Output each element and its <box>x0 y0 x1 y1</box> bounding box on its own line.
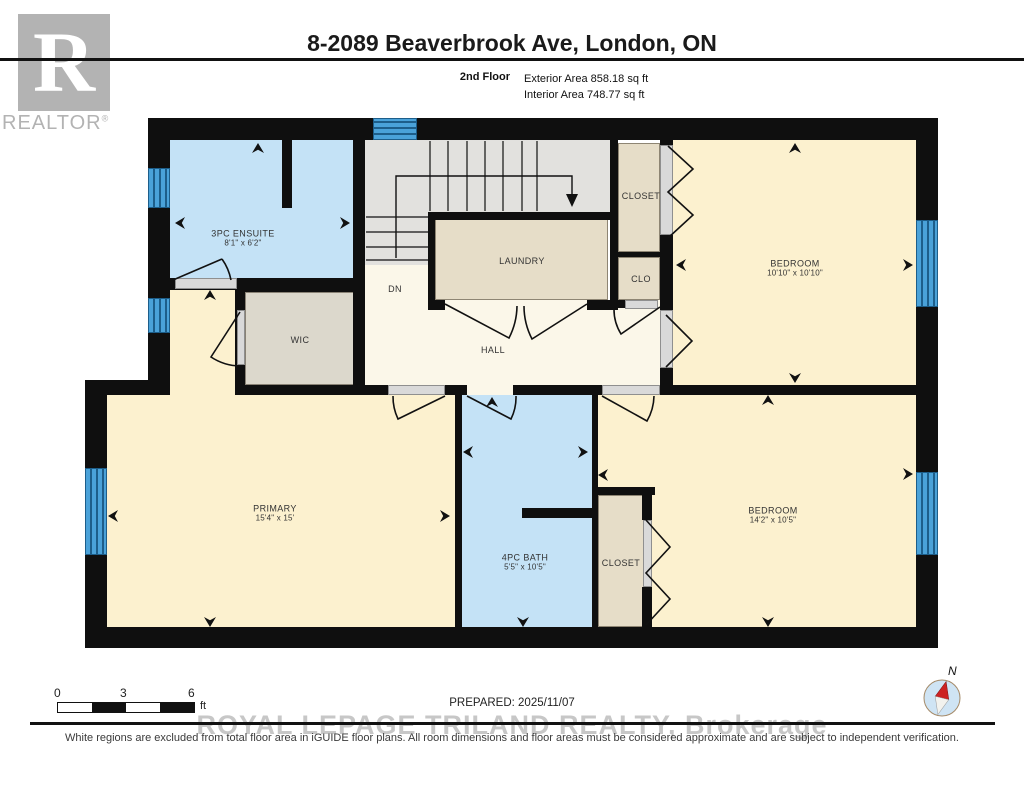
stair-arrow-head <box>566 194 578 207</box>
floor-label: 2nd Floor <box>380 71 510 83</box>
floorplan-page: R REALTOR® 8-2089 Beaverbrook Ave, Londo… <box>0 0 1024 791</box>
room-dimensions: 14'2" x 10'5" <box>748 516 797 525</box>
room-name: CLOSET <box>622 191 660 201</box>
room-label-laundry: LAUNDRY <box>499 256 545 266</box>
area-summary: Exterior Area 858.18 sq ft Interior Area… <box>524 71 648 103</box>
room-label-closet-bottom: CLOSET <box>602 558 640 568</box>
realtor-logo-letter: R <box>33 14 95 110</box>
compass-north-label: N <box>948 664 957 678</box>
room-label-dn-area: DN <box>388 284 402 294</box>
room-label-bedroom-2: BEDROOM14'2" x 10'5" <box>748 506 797 525</box>
door-swing <box>524 304 587 339</box>
interior-area: Interior Area 748.77 sq ft <box>524 87 648 103</box>
room-label-bath: 4PC BATH5'5" x 10'5" <box>502 553 549 572</box>
bifold-door <box>666 315 692 367</box>
room-dimensions: 8'1" x 6'2" <box>211 239 274 248</box>
room-name: HALL <box>481 345 505 355</box>
door-swing <box>393 396 445 419</box>
room-label-bedroom-1: BEDROOM10'10" x 10'10" <box>767 259 823 278</box>
footer-rule <box>30 722 995 725</box>
room-name: CLO <box>631 274 651 284</box>
prepared-date: PREPARED: 2025/11/07 <box>0 697 1024 709</box>
room-name: 4PC BATH <box>502 553 549 563</box>
room-name: BEDROOM <box>767 259 823 269</box>
door-swing <box>602 396 654 421</box>
door-swing <box>614 307 660 334</box>
compass: N <box>912 662 972 722</box>
room-dimensions: 10'10" x 10'10" <box>767 269 823 278</box>
bifold-door <box>646 520 670 625</box>
room-name: LAUNDRY <box>499 256 545 266</box>
door-swing <box>211 312 240 366</box>
room-name: WIC <box>291 335 310 345</box>
door-swing <box>173 259 231 280</box>
floorplan-canvas: 3PC ENSUITE8'1" x 6'2"DNLAUNDRYCLOSETCLO… <box>80 110 940 670</box>
doors-and-stairs-layer <box>80 110 940 670</box>
door-swing <box>445 304 517 338</box>
room-name: BEDROOM <box>748 506 797 516</box>
disclaimer-text: White regions are excluded from total fl… <box>0 732 1024 744</box>
room-name: CLOSET <box>602 558 640 568</box>
room-name: PRIMARY <box>253 504 297 514</box>
compass-icon <box>912 662 972 722</box>
header-rule <box>0 58 1024 61</box>
room-label-ensuite: 3PC ENSUITE8'1" x 6'2" <box>211 229 274 248</box>
room-dimensions: 15'4" x 15' <box>253 514 297 523</box>
page-title: 8-2089 Beaverbrook Ave, London, ON <box>0 30 1024 57</box>
room-name: 3PC ENSUITE <box>211 229 274 239</box>
room-label-hall: HALL <box>481 345 505 355</box>
realtor-logo: R <box>18 14 110 111</box>
room-label-wic: WIC <box>291 335 310 345</box>
room-name: DN <box>388 284 402 294</box>
exterior-area: Exterior Area 858.18 sq ft <box>524 71 648 87</box>
room-label-clo: CLO <box>631 274 651 284</box>
room-dimensions: 5'5" x 10'5" <box>502 563 549 572</box>
room-label-primary: PRIMARY15'4" x 15' <box>253 504 297 523</box>
bifold-door <box>668 146 693 238</box>
room-label-closet-top: CLOSET <box>622 191 660 201</box>
